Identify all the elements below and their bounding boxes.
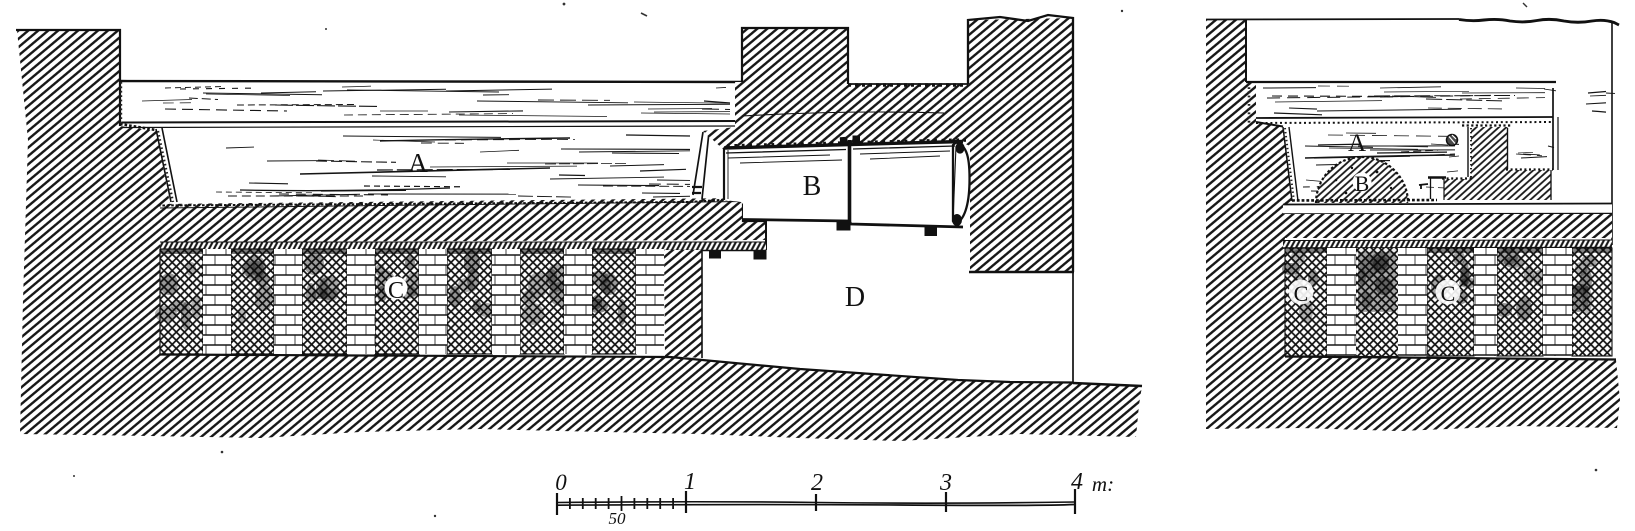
svg-text:C: C [1441,281,1456,306]
svg-text:A: A [1348,130,1366,157]
svg-text:m:: m: [1092,472,1114,496]
svg-text:3: 3 [939,470,952,496]
svg-text:50: 50 [609,509,627,528]
svg-text:1: 1 [684,469,696,495]
svg-text:B: B [1355,171,1370,196]
svg-text:D: D [845,282,865,313]
svg-text:C: C [1294,281,1309,306]
svg-text:4: 4 [1071,469,1083,495]
svg-text:A: A [408,148,428,178]
svg-text:C: C [388,278,404,304]
svg-text:2: 2 [811,470,823,496]
svg-text:B: B [803,171,822,202]
svg-text:0: 0 [555,470,567,495]
